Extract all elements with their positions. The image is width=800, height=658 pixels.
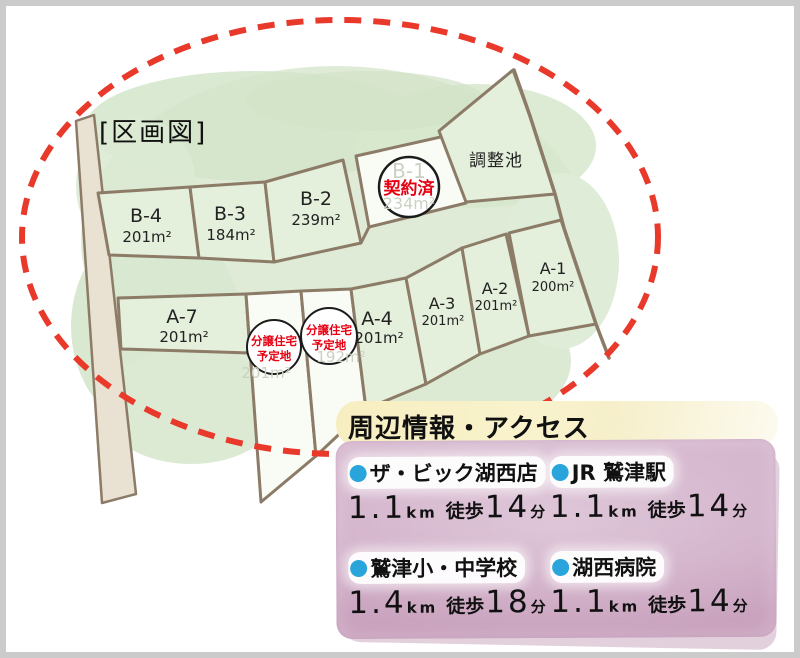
info-item-school-label: 鷲津小・中学校 bbox=[348, 551, 525, 584]
info-item-hospital: 湖西病院 1.1 km 徒歩 14 分 bbox=[550, 550, 770, 630]
info-panel: ザ・ビック湖西店 1.1 km 徒歩 14 分 JR 鷲津駅 1.1 km bbox=[335, 439, 776, 639]
lot-a4-area: 201m² bbox=[354, 329, 403, 347]
bullet-icon bbox=[552, 463, 569, 480]
lot-b3-id: B-3 bbox=[214, 203, 246, 225]
flyer-page: B-4 201m² B-3 184m² B-2 239m² A-7 201m² … bbox=[0, 0, 800, 658]
map-title: [区画図] bbox=[99, 118, 207, 148]
info-item-store-value: 1.1 km 徒歩 14 分 bbox=[348, 489, 550, 526]
lot-a2-id: A-2 bbox=[482, 279, 509, 298]
lot-a1-area: 200m² bbox=[532, 280, 575, 295]
lot-a1-id: A-1 bbox=[540, 259, 567, 278]
pond-label: 調整池 bbox=[469, 151, 523, 171]
distance-unit: km bbox=[407, 599, 439, 617]
distance-value: 1.1 bbox=[550, 584, 609, 620]
lot-a2-area: 201m² bbox=[475, 299, 518, 314]
sold-badge-text: 契約済 bbox=[383, 178, 436, 199]
info-item-school: 鷲津小・中学校 1.4 km 徒歩 18 分 bbox=[348, 551, 550, 631]
lot-b4-id: B-4 bbox=[130, 205, 162, 227]
minutes-unit: 分 bbox=[733, 595, 748, 616]
lot-a7-id: A-7 bbox=[166, 306, 198, 328]
minutes-value: 14 bbox=[485, 489, 531, 525]
walk-label: 徒歩 bbox=[648, 590, 686, 617]
info-item-station-label: JR 鷲津駅 bbox=[550, 455, 674, 488]
info-item-store-label: ザ・ビック湖西店 bbox=[348, 456, 546, 489]
bullet-icon bbox=[350, 559, 367, 576]
planned-badge-1-line1: 分譲住宅 bbox=[251, 334, 297, 348]
info-item-station: JR 鷲津駅 1.1 km 徒歩 14 分 bbox=[550, 455, 770, 535]
info-item-hospital-label: 湖西病院 bbox=[550, 550, 664, 583]
lot-b2-area: 239m² bbox=[291, 211, 340, 229]
lot-b4-area: 201m² bbox=[122, 228, 171, 246]
minutes-unit: 分 bbox=[531, 596, 546, 617]
minutes-unit: 分 bbox=[732, 500, 747, 521]
info-panel-title: 周辺情報・アクセス bbox=[348, 408, 590, 445]
place-name: JR 鷲津駅 bbox=[572, 456, 666, 486]
info-item-hospital-value: 1.1 km 徒歩 14 分 bbox=[550, 583, 770, 620]
minutes-value: 14 bbox=[687, 488, 733, 524]
info-item-station-value: 1.1 km 徒歩 14 分 bbox=[550, 488, 770, 525]
planned-badge-1-line2: 予定地 bbox=[257, 349, 292, 363]
lot-a7-area: 201m² bbox=[159, 328, 208, 346]
planned-badge-2-line2: 予定地 bbox=[312, 338, 347, 352]
walk-label: 徒歩 bbox=[648, 495, 686, 522]
minutes-value: 18 bbox=[485, 584, 531, 620]
minutes-value: 14 bbox=[687, 583, 733, 619]
distance-value: 1.1 bbox=[348, 490, 407, 526]
info-items-grid: ザ・ビック湖西店 1.1 km 徒歩 14 分 JR 鷲津駅 1.1 km bbox=[348, 455, 771, 631]
info-item-school-value: 1.4 km 徒歩 18 分 bbox=[348, 584, 550, 621]
sold-badge: B-1 234m² 契約済 bbox=[379, 157, 439, 217]
distance-unit: km bbox=[406, 504, 438, 522]
distance-unit: km bbox=[608, 503, 640, 521]
info-item-store: ザ・ビック湖西店 1.1 km 徒歩 14 分 bbox=[348, 456, 550, 536]
lot-a3-id: A-3 bbox=[429, 294, 456, 313]
place-name: ザ・ビック湖西店 bbox=[370, 457, 538, 488]
walk-label: 徒歩 bbox=[446, 591, 484, 618]
lot-b2-id: B-2 bbox=[300, 188, 332, 210]
bullet-icon bbox=[552, 558, 569, 575]
planned-badge-2-line1: 分譲住宅 bbox=[306, 323, 352, 337]
bullet-icon bbox=[350, 464, 367, 481]
lot-a4-id: A-4 bbox=[361, 308, 393, 330]
minutes-unit: 分 bbox=[530, 501, 545, 522]
lot-b3-area: 184m² bbox=[206, 226, 255, 244]
planned-lot-1-faint-area: 201m² bbox=[241, 364, 290, 382]
distance-value: 1.4 bbox=[348, 585, 407, 621]
place-name: 湖西病院 bbox=[572, 551, 656, 581]
distance-unit: km bbox=[609, 598, 641, 616]
lot-a3-area: 201m² bbox=[422, 314, 465, 329]
distance-value: 1.1 bbox=[550, 489, 609, 525]
place-name: 鷲津小・中学校 bbox=[370, 552, 517, 583]
walk-label: 徒歩 bbox=[446, 496, 484, 523]
